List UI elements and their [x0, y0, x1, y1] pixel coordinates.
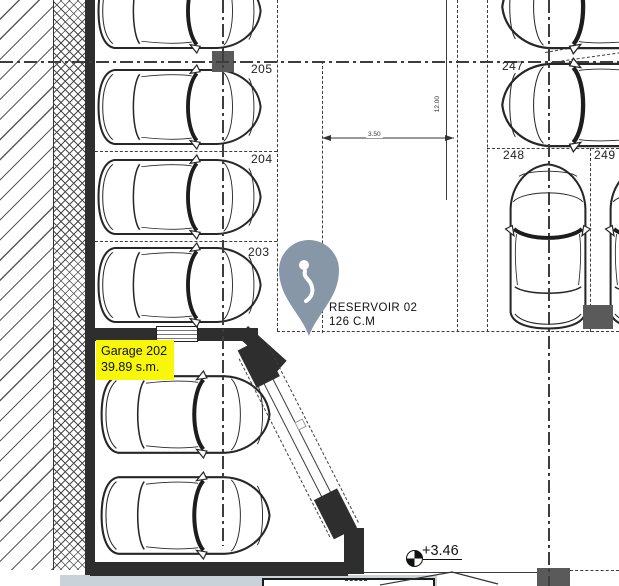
- slope-break-lines: [375, 570, 505, 586]
- car-top-view: [494, 62, 619, 148]
- car-top-view: [494, 0, 619, 50]
- dimension-value-vertical: 12.00: [434, 94, 441, 114]
- car-top-view: [96, 66, 264, 148]
- dash-segment: [570, 570, 619, 571]
- car-top-view: [96, 0, 264, 52]
- elevation-underline: [423, 559, 462, 560]
- spot-label-203: 203: [248, 245, 270, 259]
- spot-divider: [95, 241, 277, 242]
- structural-column: [583, 305, 613, 329]
- dimension-line-horizontal: [318, 130, 458, 146]
- boundary-line: [457, 0, 458, 332]
- garage-name: Garage 202: [101, 343, 167, 359]
- level-marker-icon: [406, 550, 423, 567]
- spot-label-249: 249: [594, 148, 616, 162]
- spot-label-248: 248: [503, 148, 525, 162]
- reservoir-label: RESERVOIR 02 126 C.M: [329, 301, 417, 330]
- elevation-value: +3.46: [422, 543, 459, 559]
- dimension-value-horizontal: 3.50: [366, 131, 383, 138]
- dash-segment: [345, 580, 367, 581]
- car-top-view: [96, 244, 264, 326]
- centerline-vertical-right: [548, 0, 550, 586]
- centerline-horizontal: [0, 61, 619, 63]
- reservoir-volume: 126 C.M: [329, 315, 417, 329]
- insulation-hatch-wall: [53, 0, 86, 570]
- garage-bottom-wall: [90, 562, 348, 576]
- spot-divider: [95, 151, 277, 152]
- structural-column: [537, 568, 570, 586]
- spot-label-205: 205: [251, 62, 273, 76]
- car-top-view: [99, 472, 273, 559]
- exterior-hatch-wall: [0, 0, 53, 570]
- reservoir-name: RESERVOIR 02: [329, 301, 417, 315]
- boundary-line: [487, 0, 488, 332]
- grid-line: [446, 0, 447, 200]
- left-wall: [85, 0, 95, 576]
- car-top-view: [96, 156, 264, 238]
- spot-label-204: 204: [251, 152, 273, 166]
- garage-area: 39.89 s.m.: [101, 359, 167, 375]
- floor-plan-canvas: 3.50 12.00 205 204 203 247 248 249 Garag…: [0, 0, 619, 586]
- car-top-view: [99, 371, 273, 458]
- spot-label-247: 247: [502, 59, 524, 73]
- garage-202-highlight-label[interactable]: Garage 202 39.89 s.m.: [96, 340, 174, 380]
- centerline-vertical-left: [222, 0, 224, 546]
